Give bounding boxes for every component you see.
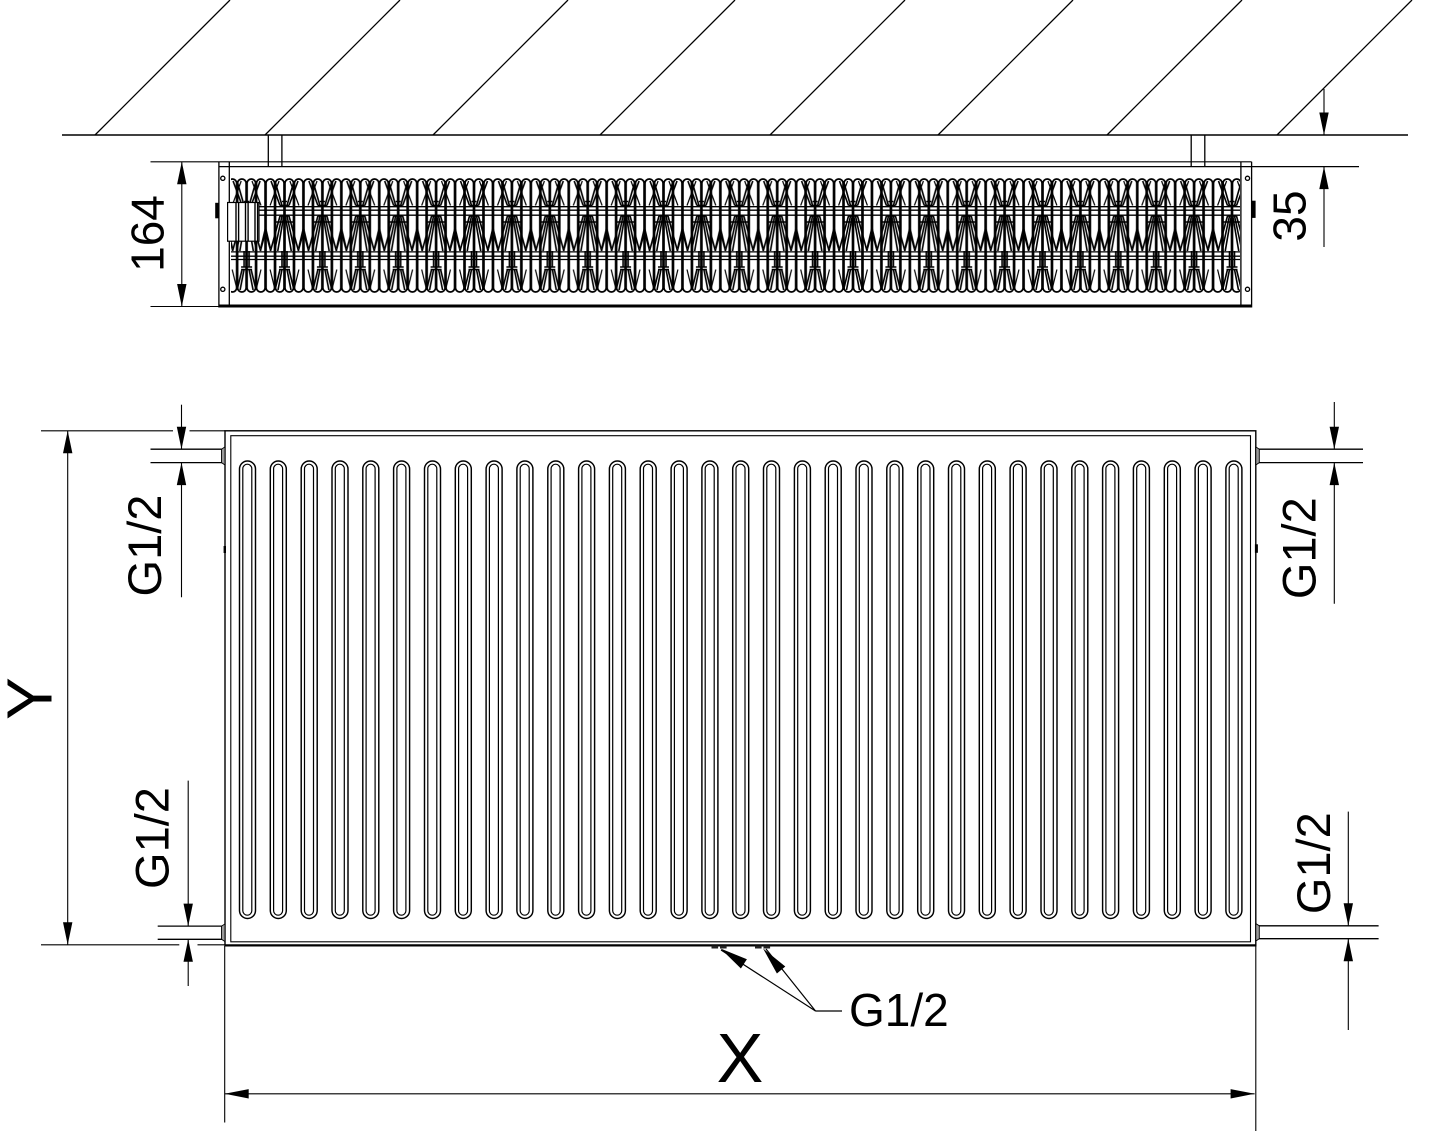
svg-text:G1/2: G1/2 <box>849 984 949 1036</box>
svg-text:G1/2: G1/2 <box>1273 497 1326 599</box>
svg-text:G1/2: G1/2 <box>126 787 179 889</box>
svg-text:G1/2: G1/2 <box>118 495 171 597</box>
svg-text:X: X <box>717 1019 764 1097</box>
svg-text:35: 35 <box>1264 190 1316 241</box>
svg-text:164: 164 <box>121 195 173 272</box>
svg-text:G1/2: G1/2 <box>1287 812 1340 914</box>
svg-text:Y: Y <box>0 677 66 720</box>
